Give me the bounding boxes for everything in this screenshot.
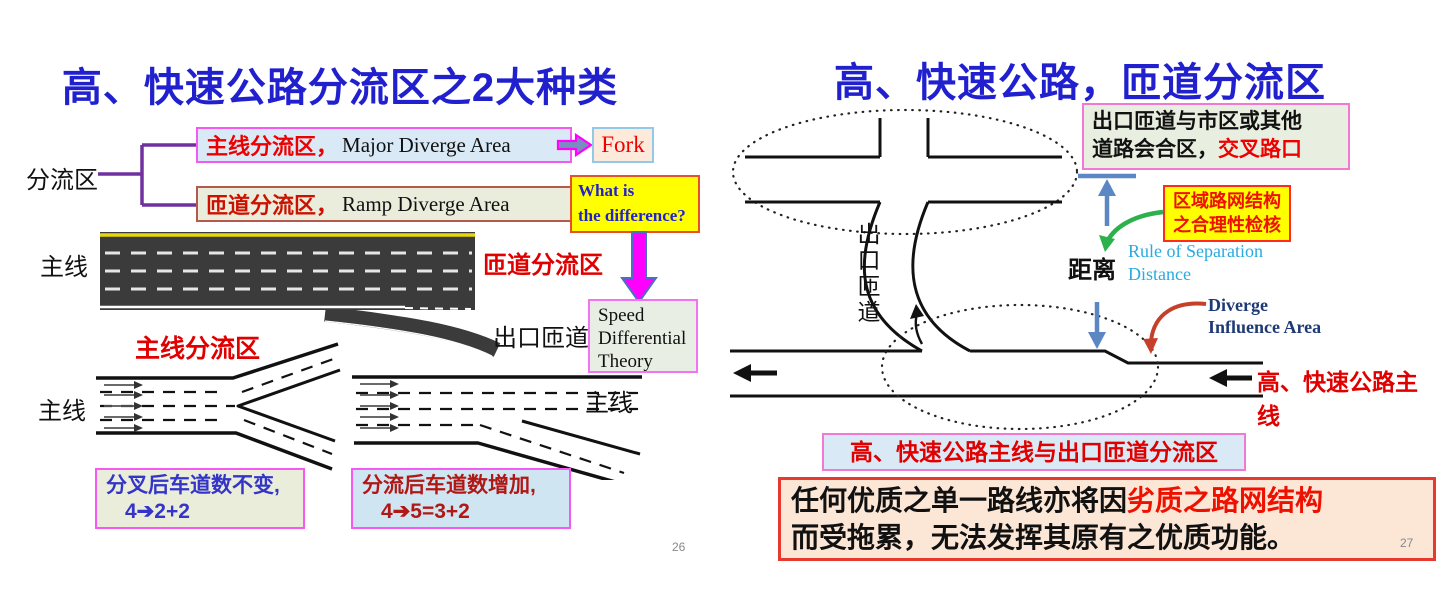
distance-label: 距离: [1068, 250, 1116, 285]
mainline-road: [730, 351, 1263, 396]
expressway-mainline-label: 高、快速公路主线: [1257, 363, 1440, 431]
traffic-direction-arrow-left: [733, 364, 777, 382]
fork-box: Fork: [592, 127, 654, 163]
statement-black2: 而受拖累，无法发挥其原有之优质功能。: [791, 522, 1295, 553]
intersection-dotted-ellipse: [733, 110, 1077, 234]
traffic-direction-arrow-right: [1209, 369, 1252, 387]
mainline-label: 主线: [40, 247, 88, 282]
fork-flow-arrows: [104, 381, 143, 432]
cross-intersection: [745, 118, 1062, 351]
statement-red: 劣质之路网结构: [1127, 485, 1323, 516]
diverge-caption-box: 分流后车道数增加, 4➔5=3+2: [351, 468, 571, 529]
ramp-diverge-cn: 匝道分流区，: [206, 188, 338, 220]
ramp-diverge-area-label: 匝道分流区: [483, 245, 603, 280]
mainline-label-fork: 主线: [38, 391, 86, 426]
diverge-dotted-ellipse: [882, 305, 1158, 429]
ramp-diverge-box: 匝道分流区， Ramp Diverge Area: [196, 186, 582, 222]
right-page-number: 27: [1400, 536, 1413, 550]
fork-arrow-icon: [556, 133, 594, 157]
red-callout-arrow: [1143, 304, 1206, 354]
block-arrow-shape: [558, 135, 591, 155]
diverge-caption-line2: 4➔5=3+2: [353, 499, 569, 525]
rule-of-separation-label: Rule of Separation Distance: [1128, 240, 1263, 285]
ramp-diverge-en: Ramp Diverge Area: [342, 192, 510, 217]
mainline-label-diverge: 主线: [585, 383, 633, 418]
two-slide-page: { "palette": { "title_blue": "#2020cf", …: [0, 0, 1440, 596]
question-box: What is the difference?: [570, 175, 700, 233]
major-diverge-cn: 主线分流区，: [206, 129, 338, 161]
tree-bracket-graphic: [96, 128, 198, 228]
tree-root-label: 分流区: [26, 160, 98, 195]
diverge-area-caption: 高、快速公路主线与出口匝道分流区: [822, 433, 1246, 471]
fork-caption-line2: 4➔2+2: [97, 499, 303, 525]
lane-diagrams: [30, 340, 680, 480]
left-page-number: 26: [672, 540, 685, 554]
major-diverge-en: Major Diverge Area: [342, 133, 511, 158]
exit-ramp-vertical-label: 出口匝道: [850, 222, 884, 326]
bracket-lines: [98, 145, 196, 205]
left-slide-title: 高、快速公路分流区之2大种类: [10, 55, 670, 113]
fork-caption-line1: 分叉后车道数不变,: [97, 473, 303, 499]
major-diverge-box: 主线分流区， Major Diverge Area: [196, 127, 572, 163]
diverge-caption-line1: 分流后车道数增加,: [353, 473, 569, 499]
down-arrow-icon: [620, 231, 658, 305]
statement-box: 任何优质之单一路线亦将因劣质之路网结构 而受拖累，无法发挥其原有之优质功能。: [778, 477, 1436, 561]
junction-callout-box: 出口匝道与市区或其他 道路会合区，交叉路口: [1082, 103, 1350, 170]
statement-black1: 任何优质之单一路线亦将因: [791, 485, 1127, 516]
network-check-box: 区域路网结构 之合理性检核: [1163, 185, 1291, 242]
diverge-influence-label: Diverge Influence Area: [1208, 295, 1321, 338]
down-arrow-shape: [622, 232, 656, 302]
junction-text-red: 交叉路口: [1218, 138, 1302, 161]
ramp-up-arrow: [910, 304, 924, 344]
fork-caption-box: 分叉后车道数不变, 4➔2+2: [95, 468, 305, 529]
